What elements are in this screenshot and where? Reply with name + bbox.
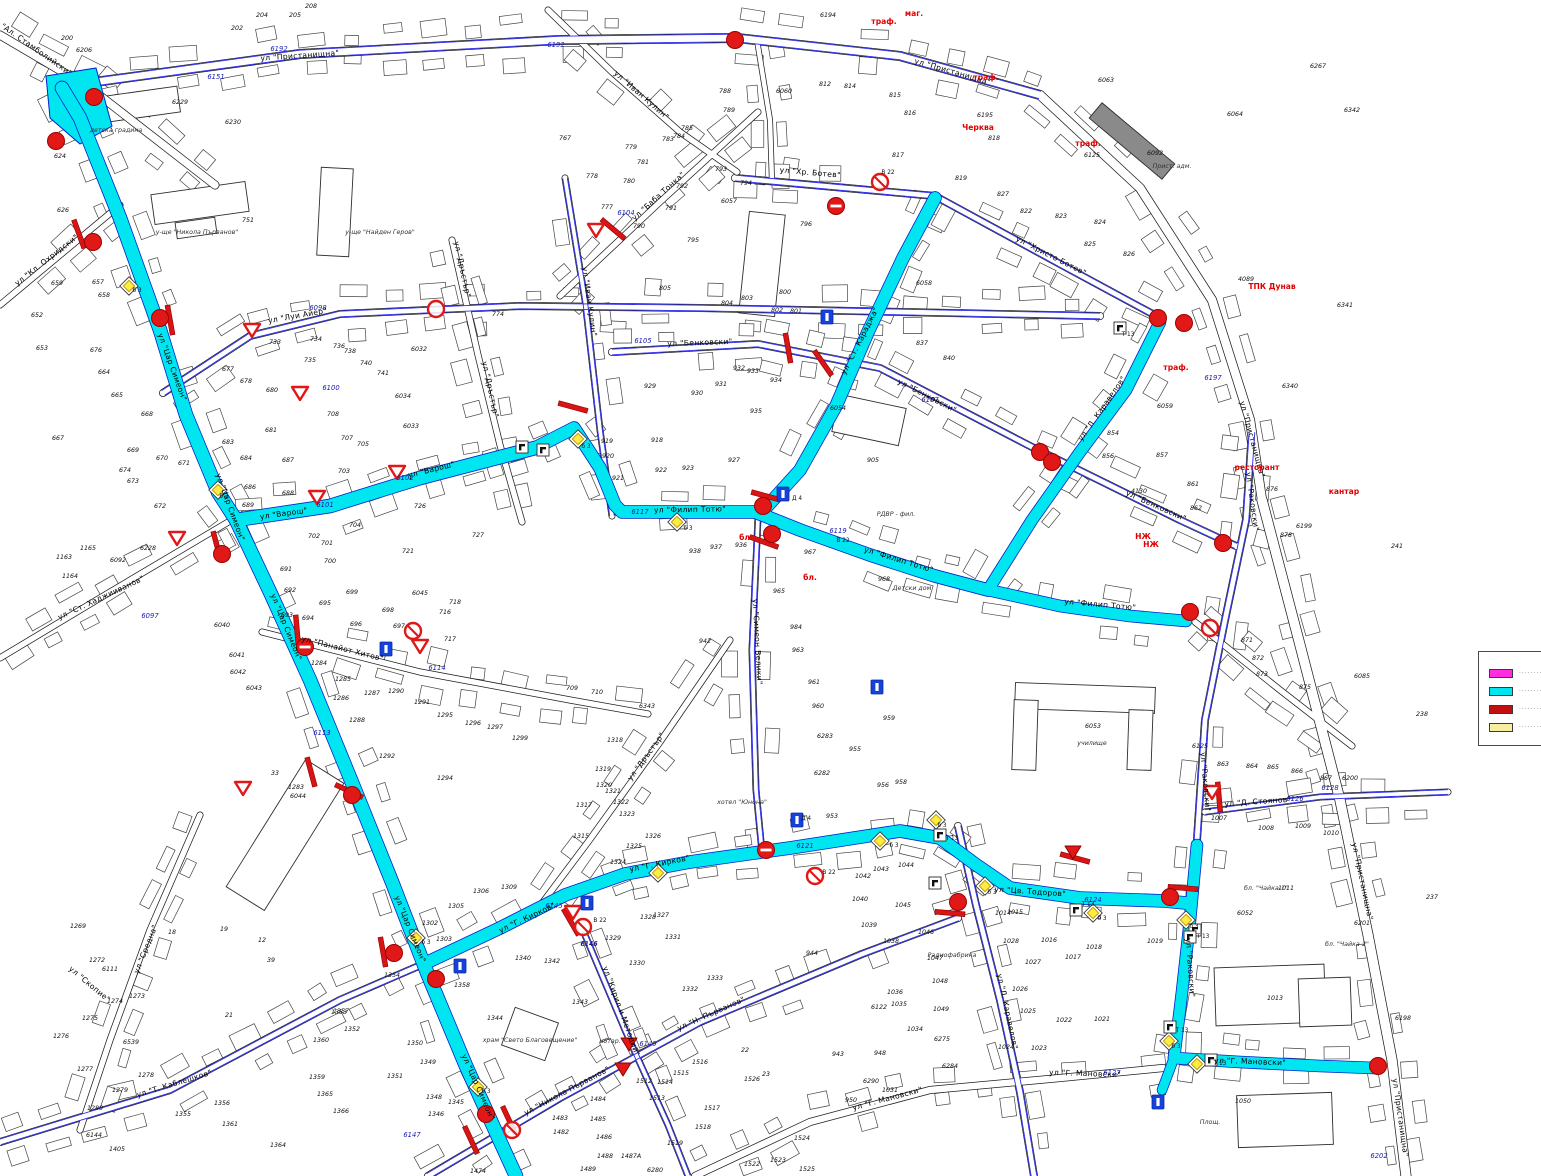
sign-point-marker (1182, 604, 1199, 621)
building (1239, 334, 1255, 363)
parcel-number: 668 (141, 411, 153, 418)
parcel-number: 1276 (53, 1033, 69, 1040)
parcel-number: 1489 (580, 1166, 596, 1173)
road-code-label: 6119 (829, 527, 846, 535)
parcel-number: 1519 (667, 1140, 683, 1147)
parcel-number: 837 (916, 340, 928, 347)
parcel-number: 702 (308, 533, 320, 540)
building (703, 486, 725, 501)
building (1213, 850, 1227, 869)
sign-point-marker (152, 310, 169, 327)
building (65, 1074, 85, 1101)
building (1324, 1047, 1349, 1059)
parcel-number: 767 (559, 135, 571, 142)
sign-point-marker (344, 787, 361, 804)
parcel-number: 6284 (942, 1063, 958, 1070)
parcel-number: 788 (719, 88, 731, 95)
no-entry-bar (300, 646, 311, 649)
parcel-number: 6290 (863, 1078, 879, 1085)
parcel-number: 624 (54, 153, 66, 160)
building (1301, 574, 1316, 602)
sign-code-label: В 22 (593, 918, 607, 924)
building (1168, 923, 1176, 939)
parking-sign-bar (875, 683, 878, 691)
building (1405, 810, 1427, 819)
building (622, 729, 646, 755)
building (1065, 299, 1079, 310)
parcel-number: 6198 (1395, 1015, 1411, 1022)
parcel-number: 6054 (830, 405, 846, 412)
facility-label: хотел "Юнона" (716, 799, 767, 806)
building (736, 868, 758, 879)
building (321, 671, 339, 697)
parcel-number: 21 (225, 1012, 233, 1019)
parcel-number: 796 (800, 221, 812, 228)
parcel-number: 878 (1280, 532, 1292, 539)
sign-code-label: Т 13 (1081, 902, 1095, 908)
road-code-label: 6100 (322, 384, 339, 392)
building (997, 944, 1011, 966)
parcel-number: 1028 (1003, 938, 1019, 945)
building (735, 980, 756, 995)
parcel-number: 6280 (647, 1167, 663, 1174)
parcel-number: 678 (240, 378, 252, 385)
building (154, 938, 172, 960)
roadwork-bar-marker (558, 401, 588, 413)
parcel-number: 1044 (898, 862, 914, 869)
parcel-number: 801 (790, 308, 802, 315)
parcel-number: 1344 (487, 1015, 503, 1022)
legend-swatch (1489, 687, 1513, 696)
building (383, 60, 407, 76)
parcel-number: 816 (904, 110, 916, 117)
road-code-label: 6197 (1204, 374, 1222, 382)
poi-label: траф. (973, 73, 998, 82)
parcel-number: 968 (878, 576, 890, 583)
building (173, 812, 192, 833)
building (1360, 842, 1376, 858)
building (459, 689, 477, 708)
parcel-number: 6042 (230, 669, 246, 676)
building (177, 74, 199, 88)
parcel-number: 1525 (799, 1166, 815, 1173)
building (430, 250, 446, 267)
parcel-number: 1036 (887, 989, 903, 996)
parcel-number: 1010 (1323, 830, 1339, 837)
building (653, 750, 674, 771)
building (247, 308, 269, 324)
parcel-number: 967 (804, 549, 816, 556)
parcel-number: 862 (1190, 505, 1202, 512)
parcel-number: 677 (222, 366, 234, 373)
building (1024, 105, 1050, 128)
building (1143, 374, 1168, 401)
parcel-number: 691 (280, 566, 292, 573)
parcel-number: 938 (689, 548, 701, 555)
road-code-label: 6147 (403, 1131, 421, 1139)
building (730, 739, 744, 754)
facility-label: училище (1076, 740, 1107, 747)
parcel-number: 672 (154, 503, 166, 510)
sign-point-marker (950, 894, 967, 911)
parcel-number: 1361 (222, 1121, 238, 1128)
parcel-number: 238 (1416, 711, 1428, 718)
intersection-sign-icon (934, 829, 946, 841)
parcel-number: 208 (305, 3, 317, 10)
parcel-number: 823 (1055, 213, 1067, 220)
parcel-number: 751 (242, 217, 254, 224)
building (383, 23, 402, 34)
legend-item-route-type-2: ········· (1489, 682, 1541, 700)
parcel-number: 6125 (1084, 152, 1100, 159)
parcel-number: 1284 (311, 660, 327, 667)
legend-rows: ···································· (1489, 664, 1541, 736)
parcel-number: 204 (256, 12, 268, 19)
parcel-number: 626 (57, 207, 69, 214)
road-code-label: 6146 (580, 940, 598, 948)
parcel-number: 779 (625, 144, 637, 151)
street-name-label: ул "Филип Тотю" (654, 504, 726, 514)
poi-label: ресторант (1235, 463, 1281, 472)
building (1172, 531, 1202, 553)
parcel-number: 944 (806, 950, 818, 957)
parcel-number: 674 (119, 467, 131, 474)
parcel-number: 1474 (470, 1168, 486, 1175)
parcel-number: 1328 (640, 914, 656, 921)
building (44, 632, 62, 648)
building (776, 122, 787, 147)
parcel-number: 6032 (411, 346, 427, 353)
parcel-number: 6343 (639, 703, 655, 710)
building (1412, 1100, 1427, 1124)
parcel-number: 958 (895, 779, 907, 786)
building (540, 709, 562, 724)
building (837, 851, 862, 869)
parcel-number: 1349 (420, 1059, 436, 1066)
parcel-number: 6034 (395, 393, 411, 400)
intersection-sign-icon (516, 441, 528, 453)
parcel-number: 1050 (1235, 1098, 1251, 1105)
parcel-number: 1297 (487, 724, 503, 731)
building (670, 660, 694, 689)
parcel-number: 686 (244, 484, 256, 491)
building (982, 289, 1000, 299)
building (156, 846, 175, 872)
building (688, 832, 718, 853)
building (470, 667, 485, 680)
building (503, 58, 526, 74)
parcel-number: 867 (1320, 775, 1332, 782)
parcel-number: 687 (282, 457, 294, 464)
parcel-number: 1286 (333, 695, 349, 702)
parcel-number: 6058 (916, 280, 932, 287)
parcel-number: 6111 (102, 966, 118, 973)
building (1179, 211, 1200, 234)
parking-sign-bar (781, 490, 784, 498)
building (457, 911, 478, 930)
legend-swatch (1489, 723, 1513, 732)
parcel-number: 1022 (1056, 1017, 1072, 1024)
parcel-number: 740 (360, 360, 372, 367)
parcel-number: 1330 (629, 960, 645, 967)
parcel-number: 1488 (597, 1153, 613, 1160)
parcel-number: 1526 (744, 1076, 760, 1083)
parcel-number: 1295 (437, 712, 453, 719)
blue-line (934, 198, 1159, 320)
parcel-number: 19 (220, 926, 228, 933)
building (1000, 1096, 1017, 1117)
parcel-number: 1042 (855, 873, 871, 880)
road-code-label: 6151 (207, 73, 224, 81)
parcel-number: 1516 (692, 1059, 708, 1066)
parcel-number: 1321 (605, 788, 621, 795)
building (1221, 473, 1240, 499)
building (1270, 647, 1292, 675)
parcel-number: 1513 (649, 1095, 665, 1102)
parcel-number: 781 (637, 159, 649, 166)
give-way-sign-icon (588, 224, 604, 237)
legend-swatch (1489, 705, 1513, 714)
parcel-number: 1512 (636, 1078, 652, 1085)
building (1179, 760, 1197, 785)
give-way-sign-icon (412, 640, 428, 653)
parcel-number: 726 (414, 503, 426, 510)
road-code-label: 6121 (796, 842, 813, 850)
sign-code-label: Т 13 (1196, 934, 1210, 940)
parcel-number: 1027 (1025, 959, 1041, 966)
sign-code-label: б 3 (683, 526, 692, 532)
building (1, 1112, 22, 1131)
parcel-number: 1483 (552, 1115, 568, 1122)
building (961, 389, 982, 406)
parcel-number: 1359 (309, 1074, 325, 1081)
parcel-number: 1486 (596, 1134, 612, 1141)
sign-point-marker (386, 945, 403, 962)
parcel-number: 866 (1291, 768, 1303, 775)
parcel-number: 1366 (333, 1108, 349, 1115)
building (267, 1001, 294, 1024)
parcel-number: 22 (741, 1047, 749, 1054)
sign-point-marker (1370, 1058, 1387, 1075)
parcel-number: 688 (282, 490, 294, 497)
building (1245, 688, 1270, 711)
road-casing (695, 1068, 1163, 1176)
building (773, 190, 798, 204)
building (899, 844, 925, 859)
parcel-number: 6064 (1227, 111, 1243, 118)
parcel-number: 863 (1217, 761, 1229, 768)
parcel-number: 1484 (590, 1096, 606, 1103)
parcel-number: 937 (710, 544, 722, 551)
parcel-number: 6085 (1354, 673, 1370, 680)
legend-item-route-type-1: ········· (1489, 664, 1541, 682)
route-highlight (988, 322, 1160, 590)
parcel-number: 789 (723, 107, 735, 114)
building (145, 153, 163, 170)
building (858, 57, 877, 75)
building (730, 1130, 748, 1150)
parcel-number: 1518 (695, 1124, 711, 1131)
parcel-number: 6144 (86, 1132, 102, 1139)
parcel-number: 1405 (109, 1146, 125, 1153)
parcel-number: 965 (773, 588, 785, 595)
building (473, 946, 494, 967)
parcel-number: 1309 (501, 884, 517, 891)
building (662, 491, 689, 501)
parcel-number: 665 (111, 392, 123, 399)
building (256, 26, 277, 43)
building (1138, 281, 1162, 302)
map-svg[interactable]: 2006206202204205208623062297516246266576… (0, 0, 1541, 1176)
building (1025, 319, 1039, 330)
parcel-number: 6230 (225, 119, 241, 126)
parcel-number: 1319 (595, 766, 611, 773)
parcel-number: 784 (673, 133, 685, 140)
building (1061, 323, 1083, 338)
building (376, 782, 390, 802)
parcel-number: 1039 (861, 922, 877, 929)
parcel-number: 6206 (76, 47, 92, 54)
parcel-number: 1348 (426, 1094, 442, 1101)
sign-code-label: Д 4 (801, 816, 811, 822)
parcel-number: 785 (681, 125, 693, 132)
sign-point-marker (428, 971, 445, 988)
parcel-number: 1318 (607, 737, 623, 744)
parcel-number: 804 (721, 300, 733, 307)
parcel-number: 1275 (82, 1015, 98, 1022)
parcel-number: 6341 (1337, 302, 1353, 309)
parcel-number: 738 (344, 348, 356, 355)
building (759, 360, 782, 376)
parcel-number: 1522 (744, 1161, 760, 1168)
map-legend: · · · · · ······························… (1478, 651, 1541, 746)
building (500, 703, 521, 716)
parcel-number: 6053 (1085, 723, 1101, 730)
parcel-number: 733 (269, 339, 281, 346)
parcel-number: 692 (284, 587, 296, 594)
parcel-number: 1350 (407, 1040, 423, 1047)
parcel-number: 826 (1123, 251, 1135, 258)
parcel-number: 1294 (437, 775, 453, 782)
poi-label: Черква (962, 123, 994, 132)
building (124, 1009, 144, 1036)
road-code-label: 6113 (313, 729, 330, 737)
building (345, 35, 359, 45)
parcel-number: 778 (586, 173, 598, 180)
legend-label: ········· (1519, 688, 1541, 695)
parcel-number: 1049 (933, 1006, 949, 1013)
building (1104, 354, 1126, 379)
large-building (502, 1007, 559, 1060)
parcel-number: 1325 (626, 843, 642, 850)
parking-sign-bar (1156, 1098, 1159, 1106)
building (331, 964, 358, 987)
parcel-number: 23 (762, 1071, 770, 1078)
building (287, 688, 309, 719)
road-code-label: 6128 (1321, 784, 1339, 792)
building (1025, 1091, 1045, 1120)
sign-code-label: б 3 (1171, 1044, 1180, 1050)
parcel-number: 1035 (891, 1001, 907, 1008)
parcel-number: 812 (819, 81, 831, 88)
building (619, 461, 637, 486)
parcel-number: 1340 (515, 955, 531, 962)
parcel-number: 18 (168, 929, 176, 936)
parcel-number: 6092 (1147, 150, 1163, 157)
building (764, 1117, 782, 1134)
building (708, 283, 723, 296)
parcel-number: 1305 (448, 903, 464, 910)
legend-label: ········· (1519, 706, 1541, 713)
building (308, 983, 327, 1001)
facility-label: Радиофабрика (928, 951, 977, 959)
building (1141, 230, 1164, 253)
building (499, 14, 522, 25)
building (169, 45, 197, 62)
sign-point-marker (86, 89, 103, 106)
map-canvas: 2006206202204205208623062297516246266576… (0, 0, 1541, 1176)
parcel-number: 734 (310, 336, 322, 343)
parcel-number: 774 (492, 311, 504, 318)
parcel-number: 1342 (544, 958, 560, 965)
building (1331, 879, 1353, 907)
parcel-number: 1025 (1020, 1008, 1036, 1015)
poi-label: кантар (1329, 487, 1360, 496)
building (642, 314, 669, 323)
building (1054, 862, 1077, 879)
parcel-number: 793 (715, 166, 727, 173)
building (1368, 1104, 1386, 1122)
parcel-number: 1292 (379, 753, 395, 760)
parcel-number: 780 (623, 178, 635, 185)
building (967, 824, 985, 847)
building (734, 835, 752, 847)
sign-code-label: б 3 (1189, 924, 1198, 930)
parcel-number: 1317 (576, 802, 592, 809)
sign-code-label: б 3 (421, 940, 430, 946)
intersection-sign-icon (1164, 1021, 1176, 1033)
parcel-number: 815 (889, 92, 901, 99)
sign-point-marker (1044, 454, 1061, 471)
parcel-number: 697 (393, 623, 405, 630)
facility-label: РДВР - фил. (877, 511, 916, 518)
parcel-number: 205 (289, 12, 301, 19)
parcel-number: 12 (258, 937, 266, 944)
parcel-number: 1016 (1041, 937, 1057, 944)
parcel-number: 1279 (112, 1087, 128, 1094)
parcel-number: 33 (271, 770, 279, 777)
facility-label: у-ще "Найден Геров" (344, 229, 415, 236)
building (463, 400, 483, 417)
facility-label: нотар. (599, 1038, 621, 1045)
parcel-number: 6040 (214, 622, 230, 629)
building (358, 747, 378, 766)
parcel-number: 689 (242, 502, 254, 509)
parcel-number: 6041 (229, 652, 245, 659)
intersection-sign-icon (1070, 904, 1082, 916)
building (1366, 808, 1389, 824)
parcel-number: 6045 (412, 590, 428, 597)
building (690, 1145, 707, 1161)
parking-sign-bar (384, 645, 387, 653)
building (213, 446, 231, 468)
parcel-number: 1323 (619, 811, 635, 818)
building (1024, 71, 1042, 86)
parcel-number: 1299 (512, 735, 528, 742)
facility-label: Детски дом (892, 585, 932, 592)
poi-label: траф. (1075, 139, 1100, 148)
parcel-number: 6275 (934, 1036, 950, 1043)
